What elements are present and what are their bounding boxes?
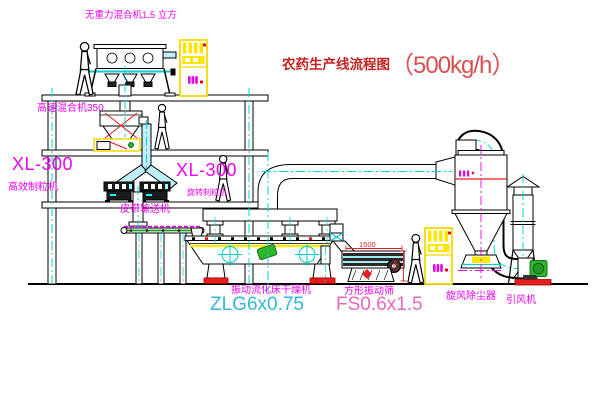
- fan-base: [515, 280, 551, 286]
- granulator-left: [104, 182, 134, 203]
- high-speed-mixer-label: 高速混合机350: [37, 104, 104, 114]
- screen-height-dimension: 340: [391, 258, 400, 271]
- gravity-mixer-label: 无重力混合机1.5 立方: [85, 11, 177, 21]
- person-roof: [76, 43, 93, 95]
- title-text: 农药生产线流程图: [282, 53, 390, 73]
- cyclone-label: 旋风除尘器: [446, 292, 496, 302]
- belt-conveyor-label: 皮带输送机: [120, 205, 170, 215]
- control-cabinet-top: [180, 40, 207, 96]
- cad-flow-diagram: 无重力混合机1.5 立方 农药生产线流程图 （500kg/h） 高速混合机350…: [0, 0, 600, 403]
- person-ground: [408, 234, 424, 283]
- induced-draft-fan: [515, 258, 551, 285]
- vibrating-screen-model-label: FS0.6x1.5: [336, 295, 423, 314]
- granulator-left-model-label: XL-300: [12, 155, 73, 173]
- granulator-right-model-label: XL-300: [176, 161, 237, 179]
- induced-draft-fan-label: 引风机: [506, 296, 536, 306]
- fluid-bed-dryer: [185, 209, 357, 284]
- granulator-right-name-label: 旋转制粒机: [187, 189, 227, 197]
- dryer-outlet-port: [330, 224, 343, 233]
- granulator-left-name-label: 高效制粒机: [8, 183, 58, 193]
- person-floor3: [155, 104, 169, 149]
- page-title: 农药生产线流程图 （500kg/h）: [282, 45, 514, 80]
- title-capacity: （500kg/h）: [390, 45, 514, 80]
- belt-conveyor: [121, 227, 204, 285]
- gravity-mixer: [85, 45, 176, 97]
- control-cabinet-ground: [425, 228, 452, 284]
- granulator-right: [140, 182, 170, 203]
- screen-length-dimension: 1500: [359, 240, 376, 249]
- dryer-hood: [203, 209, 337, 221]
- fluid-bed-dryer-model-label: ZLG6x0.75: [210, 295, 304, 314]
